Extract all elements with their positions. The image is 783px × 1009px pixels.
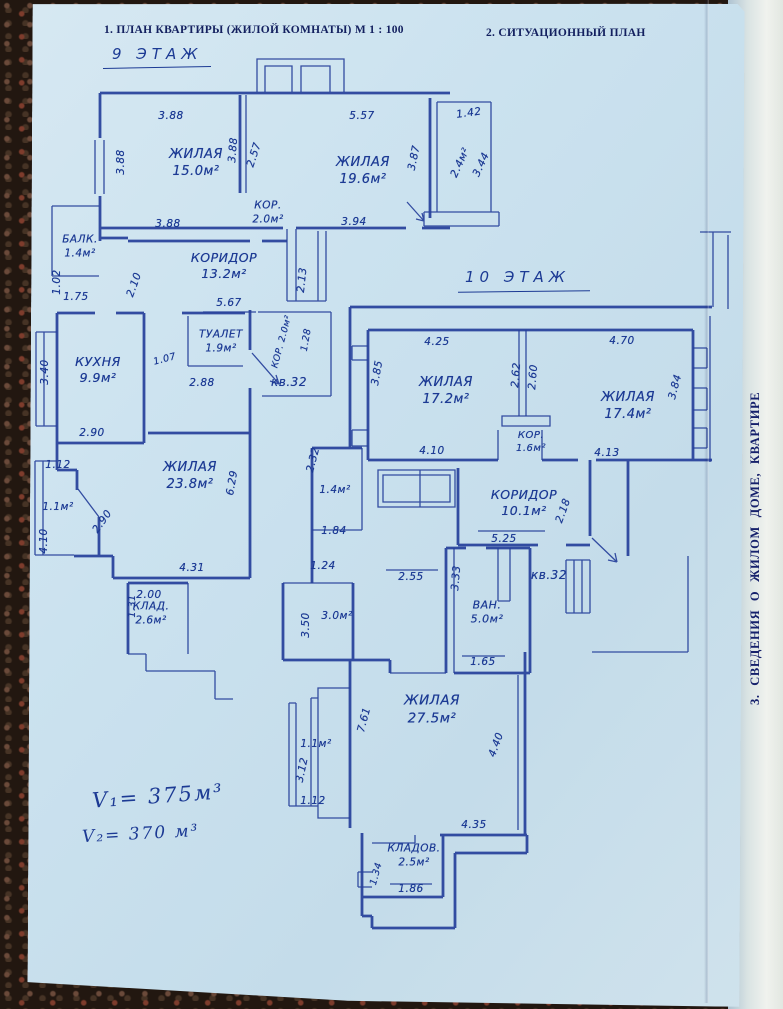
room-area-label: КОРИДОР 10.1м² (491, 487, 557, 520)
dimension-label: 2.55 (398, 571, 423, 585)
dimension-label: 3.88 (115, 149, 129, 174)
room-area-label: ВАН. 5.0м² (471, 599, 504, 628)
room-area-label: ЖИЛАЯ 17.2м² (419, 375, 473, 409)
room-area-label: ЖИЛАЯ 15.0м² (169, 147, 223, 181)
dimension-label: 4.25 (424, 336, 449, 350)
dimension-label: 3.88 (226, 137, 242, 163)
dimension-label: 4.10 (419, 445, 444, 459)
dimension-label: 2.88 (189, 377, 214, 391)
dimension-label: 4.13 (594, 447, 619, 461)
dimension-label: 4.35 (461, 819, 486, 833)
dimension-label: 4.10 (38, 528, 52, 553)
apartment-ref-label: кв.32 (531, 568, 567, 584)
paper-fold-crease (704, 0, 709, 1003)
room-area-label: ЖИЛАЯ 23.8м² (163, 460, 217, 494)
section3-side-caption: 3. СВЕДЕНИЯ О ЖИЛОМ ДОМЕ, КВАРТИРЕ (748, 360, 763, 705)
dimension-label: 1.75 (63, 291, 88, 305)
apartment-ref-label: кв.32 (271, 375, 307, 391)
room-area-label: КУХНЯ 9.9м² (75, 354, 121, 387)
partition-foot (502, 416, 550, 426)
dimension-label: 5.67 (216, 297, 241, 311)
dimension-label: 3.50 (300, 612, 314, 637)
dimension-label: 1.84 (321, 525, 346, 539)
dimension-label: 3.88 (158, 110, 183, 124)
area-label: 1.4м² (319, 484, 350, 498)
dimension-label: 1.24 (310, 560, 335, 574)
dimension-label: 1.65 (470, 656, 495, 670)
room-area-label: БАЛК. 1.4м² (62, 233, 98, 260)
room-area-label: КЛАДОВ. 2.5м² (387, 842, 440, 869)
dimension-label: 3.94 (341, 216, 366, 230)
room-area-label: ЖИЛАЯ 17.4м² (601, 390, 655, 424)
dimension-label: 2.13 (295, 267, 311, 294)
area-label: 1.1м² (42, 501, 73, 515)
dimension-label: 2.00 (136, 589, 161, 603)
dimension-label: 3.88 (155, 218, 180, 232)
dimension-label: 4.31 (179, 562, 204, 576)
room-area-label: КОР. 1.6м² (516, 429, 546, 455)
dimension-label: 1.12 (45, 459, 70, 473)
dimension-label: 4.70 (609, 335, 634, 349)
area-label: 1.1м² (300, 738, 331, 752)
dimension-label: 5.57 (349, 110, 374, 124)
room-area-label: ЖИЛАЯ 19.6м² (336, 155, 390, 189)
dimension-label: 3.40 (39, 359, 53, 384)
room-area-label: КОР. 2.0м² (252, 199, 283, 226)
dimension-label: 5.25 (491, 533, 516, 547)
area-label: 3.0м² (321, 610, 352, 624)
room-area-label: ЖИЛАЯ 27.5м² (404, 692, 460, 727)
scanned-floor-plan-page: 1. ПЛАН КВАРТИРЫ (ЖИЛОЙ КОМНАТЫ) М 1 : 1… (0, 0, 783, 1009)
dimension-label: 2.60 (526, 364, 542, 390)
room-area-label: ТУАЛЕТ 1.9м² (199, 328, 243, 355)
page-content: 1. ПЛАН КВАРТИРЫ (ЖИЛОЙ КОМНАТЫ) М 1 : 1… (0, 0, 783, 1009)
dimension-label: 1.12 (300, 795, 325, 809)
dimension-label: 1.86 (398, 883, 423, 897)
dimension-label: 3.33 (449, 565, 465, 591)
dimension-label: 2.90 (79, 427, 104, 441)
room-area-label: КОРИДОР 13.2м² (191, 250, 257, 283)
dimension-label: 1.31 (127, 594, 139, 617)
dimension-label: 2.62 (509, 362, 525, 388)
